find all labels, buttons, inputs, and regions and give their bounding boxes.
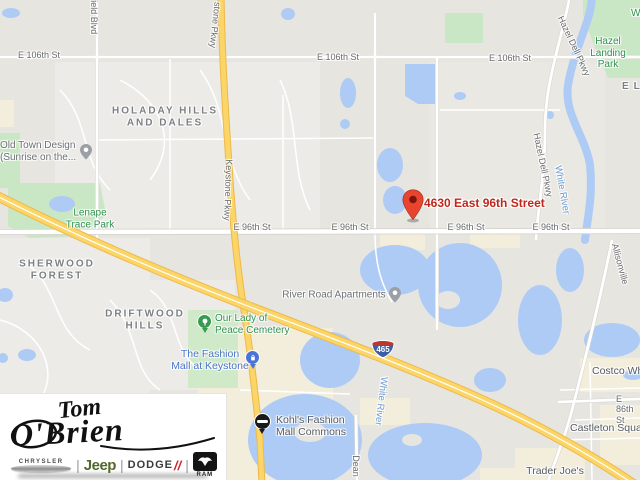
dealer-script-name: Tom O'Brien <box>6 396 221 452</box>
old-town-pin-icon[interactable] <box>80 144 92 160</box>
park-label-truncated-w: W <box>631 8 640 20</box>
neighborhood-label-holaday: HOLADAY HILLS AND DALES <box>112 106 218 129</box>
street-label-e96th-3: E 96th St <box>447 222 484 232</box>
fashion-mall-pin-icon[interactable] <box>245 350 261 370</box>
i465-shield-icon: 465 <box>371 340 395 358</box>
brand-separator: | <box>120 457 124 473</box>
neighborhood-label-el: EL <box>622 81 640 93</box>
poi-label-trader-joes[interactable]: Trader Joe's <box>526 465 584 477</box>
chrysler-logo: CHRYSLER <box>10 459 72 472</box>
park-label-hazel-landing: Hazel Landing Park <box>590 36 626 71</box>
street-label-e86th: E 86th St <box>616 394 640 425</box>
chrysler-wing-icon <box>11 465 71 472</box>
poi-label-fashion-mall[interactable]: The Fashion Mall at Keystone <box>171 348 249 372</box>
street-label-e106th-3: E 106th St <box>489 53 531 63</box>
street-label-keystone-pkwy: Keystone Pkwy <box>222 159 234 221</box>
dealer-logo: Tom O'Brien CHRYSLER | Jeep | DODGE // | <box>0 393 227 480</box>
logo-reflection <box>18 474 208 478</box>
destination-marker-icon[interactable] <box>402 189 424 223</box>
brand-separator: | <box>185 457 189 473</box>
ram-badge-icon <box>193 452 217 471</box>
destination-marker-label[interactable]: 4630 East 96th Street <box>424 197 545 211</box>
map-screenshot: E 106th St E 106th St E 106th St E 96th … <box>0 0 640 480</box>
dodge-stripes-icon: // <box>174 458 181 473</box>
poi-label-river-road-apartments[interactable]: River Road Apartments <box>282 289 385 301</box>
park-label-lenape: Lenape Trace Park <box>66 208 115 231</box>
river-road-pin-icon[interactable] <box>389 287 401 303</box>
street-label-westfield-blvd: field Blvd <box>89 0 99 34</box>
street-label-e106th-2: E 106th St <box>317 52 359 62</box>
dealer-script-flourish <box>6 396 221 452</box>
poi-label-kohls[interactable]: Kohl's Fashion Mall Commons <box>276 414 346 438</box>
poi-label-costco[interactable]: Costco Wholesale <box>592 365 640 377</box>
neighborhood-label-sherwood: SHERWOOD FOREST <box>19 259 95 282</box>
cemetery-pin-icon[interactable] <box>197 314 213 334</box>
kohls-pin-icon[interactable] <box>254 413 270 433</box>
street-label-e96th-1: E 96th St <box>233 222 270 232</box>
neighborhood-label-driftwood: DRIFTWOOD HILLS <box>105 309 185 332</box>
street-label-dean-rd: Dean <box>351 455 361 477</box>
street-label-e96th-4: E 96th St <box>532 222 569 232</box>
street-label-e96th-2: E 96th St <box>331 222 368 232</box>
poi-label-old-town-design[interactable]: Old Town Design (Sunrise on the... <box>0 140 76 163</box>
dodge-wordmark: DODGE <box>128 459 173 471</box>
chrysler-wordmark: CHRYSLER <box>19 459 64 465</box>
brand-separator: | <box>76 457 80 473</box>
jeep-wordmark: Jeep <box>84 457 116 474</box>
poi-label-castleton-square[interactable]: Castleton Square <box>570 422 640 434</box>
dodge-logo: DODGE // <box>128 458 182 473</box>
street-label-e106th-1: E 106th St <box>18 50 60 60</box>
i465-shield-number: 465 <box>371 345 395 354</box>
poi-label-cemetery[interactable]: Our Lady of Peace Cemetery <box>215 313 289 336</box>
